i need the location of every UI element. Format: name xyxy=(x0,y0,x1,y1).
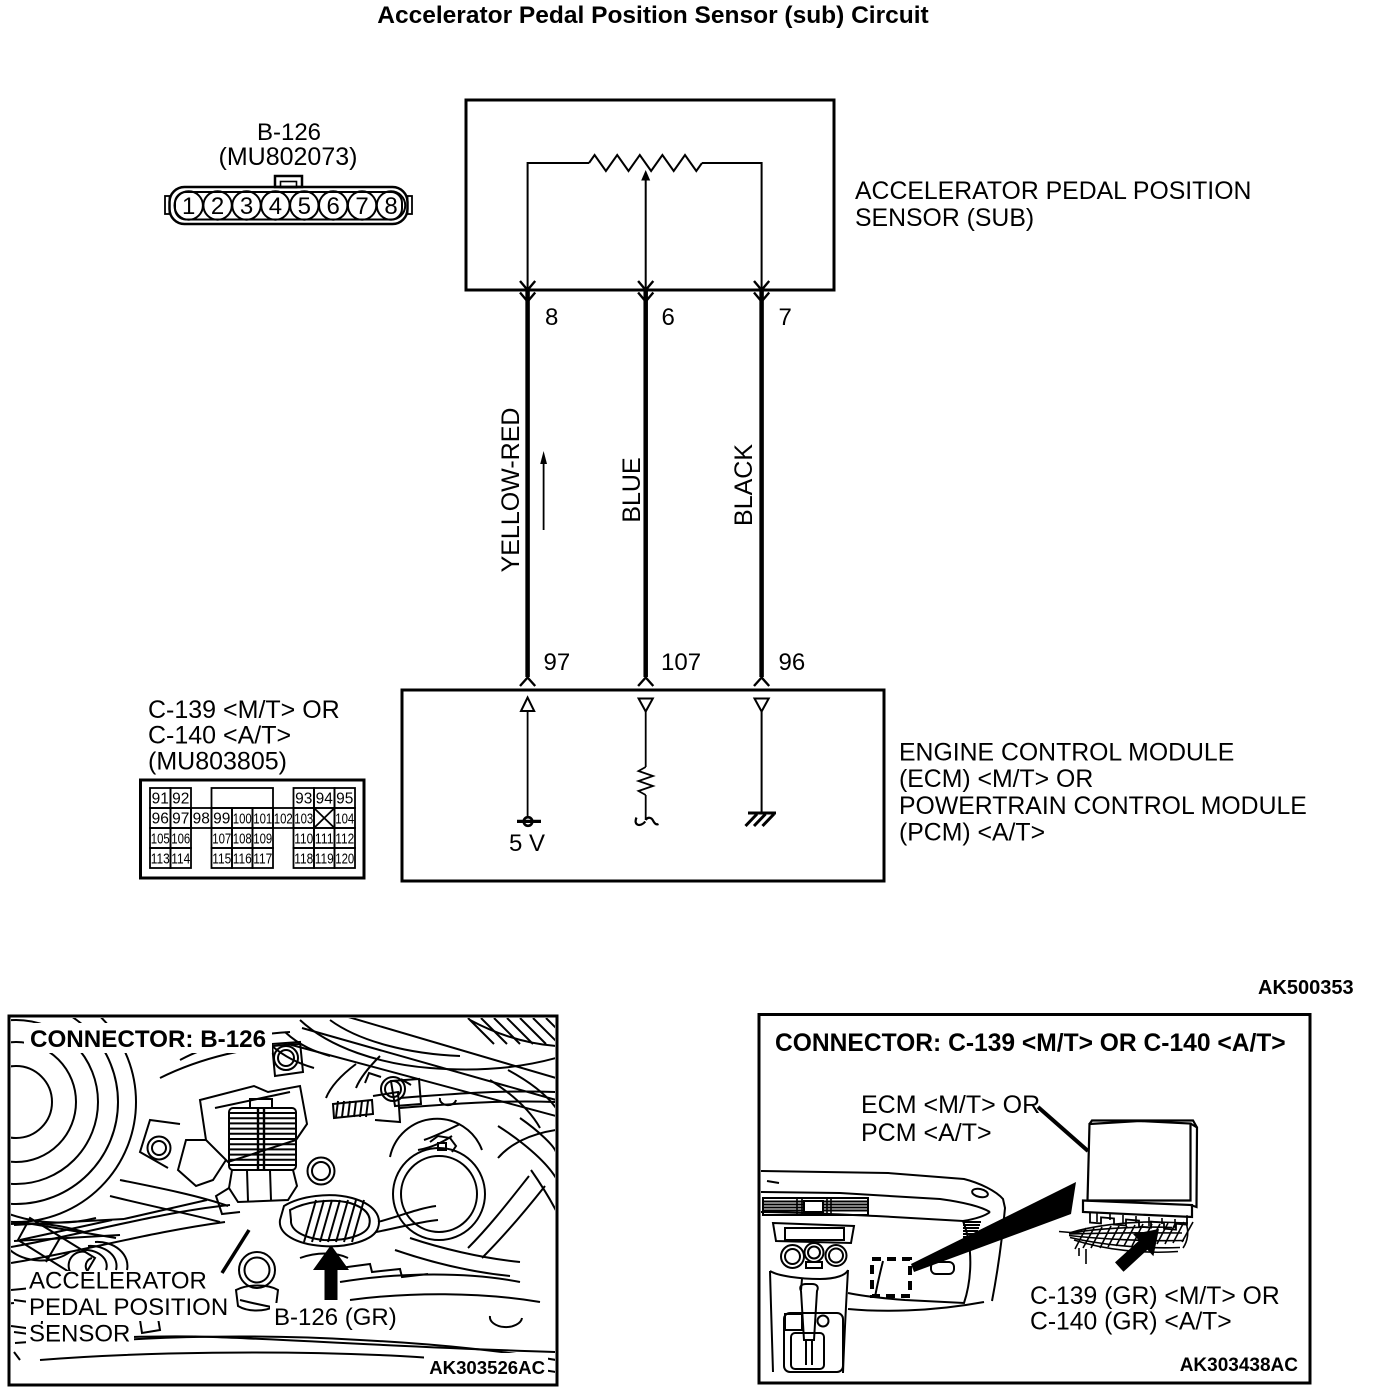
svg-text:1: 1 xyxy=(182,193,195,220)
svg-text:C-140 <A/T>: C-140 <A/T> xyxy=(148,722,291,750)
svg-text:6: 6 xyxy=(662,304,675,331)
svg-text:C-140 (GR) <A/T>: C-140 (GR) <A/T> xyxy=(1030,1309,1232,1336)
svg-text:PCM <A/T>: PCM <A/T> xyxy=(861,1119,992,1147)
svg-text:97: 97 xyxy=(544,649,571,676)
svg-text:(MU803805): (MU803805) xyxy=(148,747,287,775)
svg-text:97: 97 xyxy=(172,811,189,828)
svg-text:AK303526AC: AK303526AC xyxy=(429,1357,545,1378)
svg-text:115: 115 xyxy=(212,852,231,868)
svg-text:94: 94 xyxy=(316,791,334,808)
svg-text:99: 99 xyxy=(213,811,230,828)
svg-text:100: 100 xyxy=(233,812,252,828)
svg-text:PEDAL POSITION: PEDAL POSITION xyxy=(29,1294,228,1321)
svg-text:CONNECTOR: C-139 <M/T> OR C-14: CONNECTOR: C-139 <M/T> OR C-140 <A/T> xyxy=(775,1030,1286,1057)
svg-text:CONNECTOR: B-126: CONNECTOR: B-126 xyxy=(30,1026,266,1053)
svg-text:BLACK: BLACK xyxy=(730,444,758,526)
svg-text:98: 98 xyxy=(193,811,210,828)
svg-text:106: 106 xyxy=(171,832,190,848)
svg-text:C-139 (GR) <M/T> OR: C-139 (GR) <M/T> OR xyxy=(1030,1283,1280,1310)
svg-text:YELLOW-RED: YELLOW-RED xyxy=(497,408,525,573)
svg-text:96: 96 xyxy=(152,811,169,828)
svg-text:POWERTRAIN CONTROL MODULE: POWERTRAIN CONTROL MODULE xyxy=(899,793,1307,820)
svg-text:118: 118 xyxy=(294,852,313,868)
svg-text:107: 107 xyxy=(661,649,701,676)
svg-text:SENSOR (SUB): SENSOR (SUB) xyxy=(855,205,1034,232)
svg-text:8: 8 xyxy=(545,304,558,331)
svg-text:B-126: B-126 xyxy=(257,119,321,146)
svg-text:3: 3 xyxy=(240,193,253,220)
svg-text:91: 91 xyxy=(152,791,169,808)
svg-text:93: 93 xyxy=(295,791,312,808)
svg-text:111: 111 xyxy=(315,832,334,848)
svg-text:ENGINE CONTROL MODULE: ENGINE CONTROL MODULE xyxy=(899,740,1234,767)
svg-text:109: 109 xyxy=(253,832,272,848)
svg-text:ECM <M/T> OR: ECM <M/T> OR xyxy=(861,1091,1040,1119)
svg-text:B-126 (GR): B-126 (GR) xyxy=(274,1304,397,1331)
svg-text:(PCM) <A/T>: (PCM) <A/T> xyxy=(899,820,1045,847)
svg-text:7: 7 xyxy=(355,193,368,220)
svg-text:ACCELERATOR: ACCELERATOR xyxy=(29,1268,207,1295)
svg-text:AK303438AC: AK303438AC xyxy=(1180,1355,1299,1376)
svg-text:AK500353: AK500353 xyxy=(1258,977,1354,999)
svg-text:101: 101 xyxy=(253,812,272,828)
svg-text:105: 105 xyxy=(151,832,170,848)
svg-text:107: 107 xyxy=(212,832,231,848)
svg-text:96: 96 xyxy=(779,649,806,676)
svg-text:114: 114 xyxy=(171,852,190,868)
svg-text:102: 102 xyxy=(274,812,293,828)
svg-text:113: 113 xyxy=(151,852,170,868)
svg-text:119: 119 xyxy=(315,852,334,868)
svg-text:2: 2 xyxy=(211,193,224,220)
svg-text:SENSOR: SENSOR xyxy=(29,1321,130,1348)
svg-text:6: 6 xyxy=(327,193,340,220)
svg-text:108: 108 xyxy=(233,832,252,848)
svg-text:116: 116 xyxy=(233,852,252,868)
svg-text:(ECM) <M/T> OR: (ECM) <M/T> OR xyxy=(899,766,1093,793)
svg-text:5 V: 5 V xyxy=(509,830,545,857)
svg-text:C-139 <M/T> OR: C-139 <M/T> OR xyxy=(148,696,340,724)
svg-text:(MU802073): (MU802073) xyxy=(219,143,358,171)
svg-text:110: 110 xyxy=(294,832,313,848)
svg-text:112: 112 xyxy=(335,832,354,848)
svg-text:103: 103 xyxy=(294,812,313,828)
svg-text:8: 8 xyxy=(384,193,397,220)
svg-text:120: 120 xyxy=(335,852,354,868)
svg-text:BLUE: BLUE xyxy=(618,457,646,522)
svg-text:ACCELERATOR PEDAL POSITION: ACCELERATOR PEDAL POSITION xyxy=(855,178,1251,205)
svg-text:104: 104 xyxy=(335,812,354,828)
svg-text:5: 5 xyxy=(298,193,311,220)
svg-text:117: 117 xyxy=(253,852,272,868)
svg-text:95: 95 xyxy=(336,791,353,808)
svg-text:4: 4 xyxy=(269,193,282,220)
svg-text:92: 92 xyxy=(172,791,189,808)
svg-text:7: 7 xyxy=(779,304,792,331)
svg-text:Accelerator Pedal Position Sen: Accelerator Pedal Position Sensor (sub) … xyxy=(377,2,928,29)
